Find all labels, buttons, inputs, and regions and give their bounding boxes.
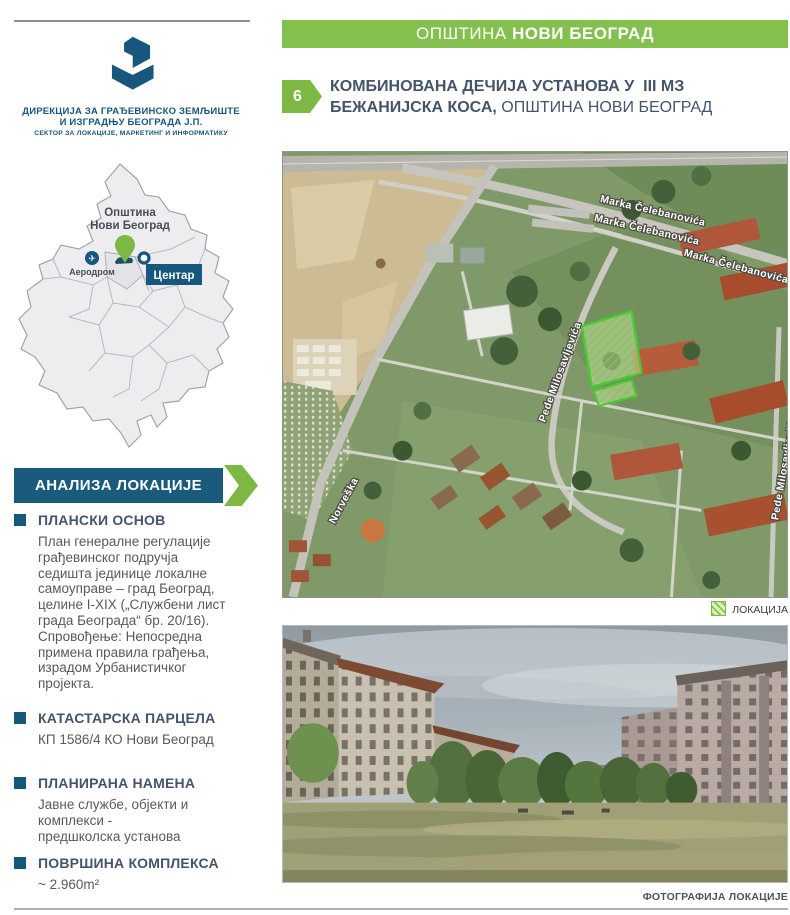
square-bullet-icon: [14, 514, 26, 526]
center-badge-label: Центар: [154, 270, 195, 282]
organization-name: ДИРЕКЦИЈА ЗА ГРАЂЕВИНСКО ЗЕМЉИШТЕ И ИЗГР…: [0, 106, 262, 137]
municipality-header-prefix: ОПШТИНА: [416, 24, 512, 43]
direkcija-logo-icon: [0, 34, 262, 107]
municipality-label-line1: Општина: [104, 207, 156, 219]
org-sector: СЕКТОР ЗА ЛОКАЦИЈЕ, МАРКЕТИНГ И ИНФОРМАТ…: [0, 130, 262, 137]
location-swatch-icon: [711, 601, 726, 616]
square-bullet-icon: [14, 857, 26, 869]
playground-circle: [361, 518, 385, 542]
body-line: примена правила грађења,: [38, 645, 264, 661]
org-name-line2: И ИЗГРАДЊУ БЕОГРАДА Ј.П.: [0, 117, 262, 128]
body-line: КП 1586/4 КО Нови Београд: [38, 732, 264, 748]
square-bullet-icon: [14, 712, 26, 724]
map-legend: ЛОКАЦИЈА: [282, 601, 788, 616]
section-heading: ПЛАНИРАНА НАМЕНА: [38, 775, 195, 791]
body-line: Спровођење: Непосредна: [38, 629, 264, 645]
white-roof-building: [463, 304, 513, 340]
document-page: ДИРЕКЦИЈА ЗА ГРАЂЕВИНСКО ЗЕМЉИШТЕ И ИЗГР…: [0, 0, 790, 915]
body-line: самоуправе – град Београд,: [38, 581, 264, 597]
section-heading: ПЛАНСКИ ОСНОВ: [38, 512, 165, 528]
body-line: грађевинског подручја: [38, 550, 264, 566]
section-heading: КАТАСТАРСКА ПАРЦЕЛА: [38, 710, 215, 726]
title-line2-bold: БЕЖАНИЈСКА КОСА,: [330, 99, 497, 116]
section-body: КП 1586/4 КО Нови Београд: [38, 732, 264, 748]
satellite-map: Marka Čelebanovića Marka Čelebanovića Ma…: [282, 151, 788, 598]
body-line: План генералне регулације: [38, 534, 264, 550]
section-body: Јавне службе, објекти и комплекси - пред…: [38, 797, 264, 844]
airport-plane-glyph: ✈: [88, 254, 96, 264]
bottom-divider: [14, 908, 788, 910]
location-photo: [282, 625, 788, 883]
body-line: комплекси -: [38, 813, 264, 829]
chevron-arrow-icon: [224, 465, 258, 506]
item-number-badge: 6: [282, 80, 322, 113]
square-bullet-icon: [14, 777, 26, 789]
title-line1: КОМБИНОВАНА ДЕЧИЈА УСТАНОВА У III МЗ: [330, 78, 684, 95]
body-line: града Београда“ бр. 20/16).: [38, 613, 264, 629]
page-title: КОМБИНОВАНА ДЕЧИЈА УСТАНОВА У III МЗБЕЖА…: [330, 76, 780, 118]
section-heading: ПОВРШИНА КОМПЛЕКСА: [38, 855, 219, 871]
body-line: ~ 2.960m²: [38, 877, 264, 893]
legend-label: ЛОКАЦИЈА: [732, 604, 788, 616]
body-line: Јавне службе, објекти и: [38, 797, 264, 813]
airport-label: Аеродром: [69, 267, 115, 277]
municipality-header: ОПШТИНА НОВИ БЕОГРАД: [282, 20, 788, 48]
municipality-header-name: НОВИ БЕОГРАД: [512, 24, 654, 43]
section-body: План генералне регулације грађевинског п…: [38, 534, 264, 692]
photo-caption: ФОТОГРАФИЈА ЛОКАЦИЈЕ: [282, 891, 788, 903]
body-line: целине I-XIX („Службени лист: [38, 597, 264, 613]
center-ring-icon: [139, 253, 149, 263]
top-divider: [14, 20, 250, 22]
org-name-line1: ДИРЕКЦИЈА ЗА ГРАЂЕВИНСКО ЗЕМЉИШТЕ: [0, 106, 262, 117]
section-planirana-namena: ПЛАНИРАНА НАМЕНА Јавне службе, објекти и…: [14, 775, 264, 844]
body-line: израдом Урбанистичког: [38, 660, 264, 676]
section-povrsina-kompleksa: ПОВРШИНА КОМПЛЕКСА ~ 2.960m²: [14, 855, 264, 893]
analysis-banner: АНАЛИЗА ЛОКАЦИЈЕ: [14, 468, 223, 503]
belgrade-municipalities-map: Општина Нови Београд ✈ Аеродром Центар: [8, 158, 258, 453]
body-line: предшколска установа: [38, 829, 264, 845]
section-body: ~ 2.960m²: [38, 877, 264, 893]
municipality-label-line2: Нови Београд: [90, 220, 171, 232]
body-line: седишта јединице локалне: [38, 566, 264, 582]
section-katastarska-parcela: КАТАСТАРСКА ПАРЦЕЛА КП 1586/4 КО Нови Бе…: [14, 710, 264, 748]
title-line2-regular: ОПШТИНА НОВИ БЕОГРАД: [497, 99, 713, 116]
section-planski-osnov: ПЛАНСКИ ОСНОВ План генералне регулације …: [14, 512, 264, 692]
body-line: пројекта.: [38, 676, 264, 692]
